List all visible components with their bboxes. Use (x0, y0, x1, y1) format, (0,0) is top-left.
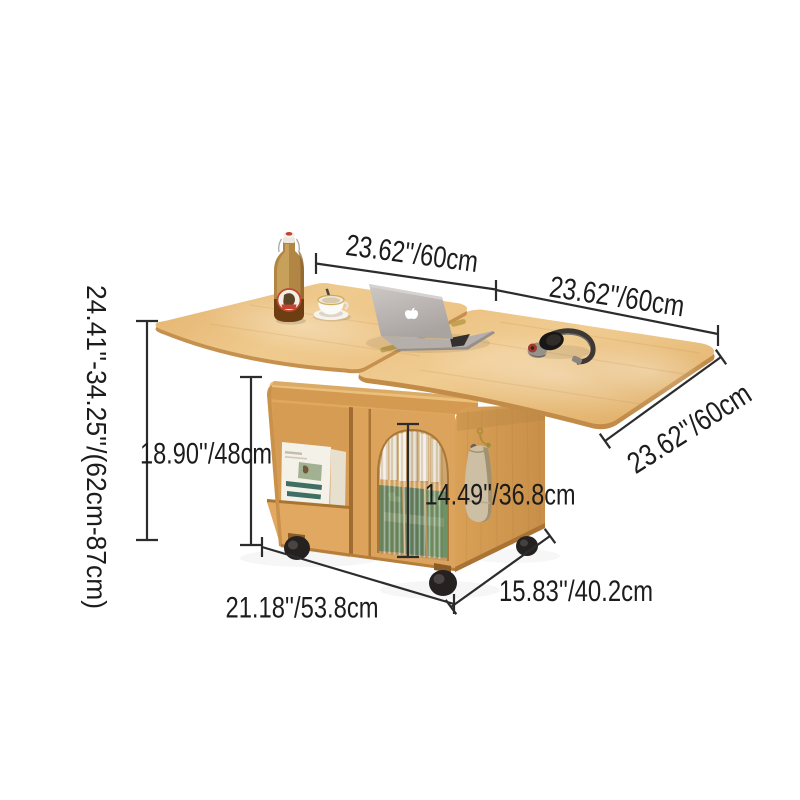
svg-text:21.18''/53.8cm: 21.18''/53.8cm (226, 592, 379, 625)
svg-text:14.49''/36.8cm: 14.49''/36.8cm (425, 479, 576, 512)
svg-text:15.83''/40.2cm: 15.83''/40.2cm (499, 575, 653, 608)
svg-text:18.90''/48cm: 18.90''/48cm (140, 438, 272, 471)
svg-text:24.41''-34.25''/(62cm-87cm): 24.41''-34.25''/(62cm-87cm) (81, 285, 112, 609)
